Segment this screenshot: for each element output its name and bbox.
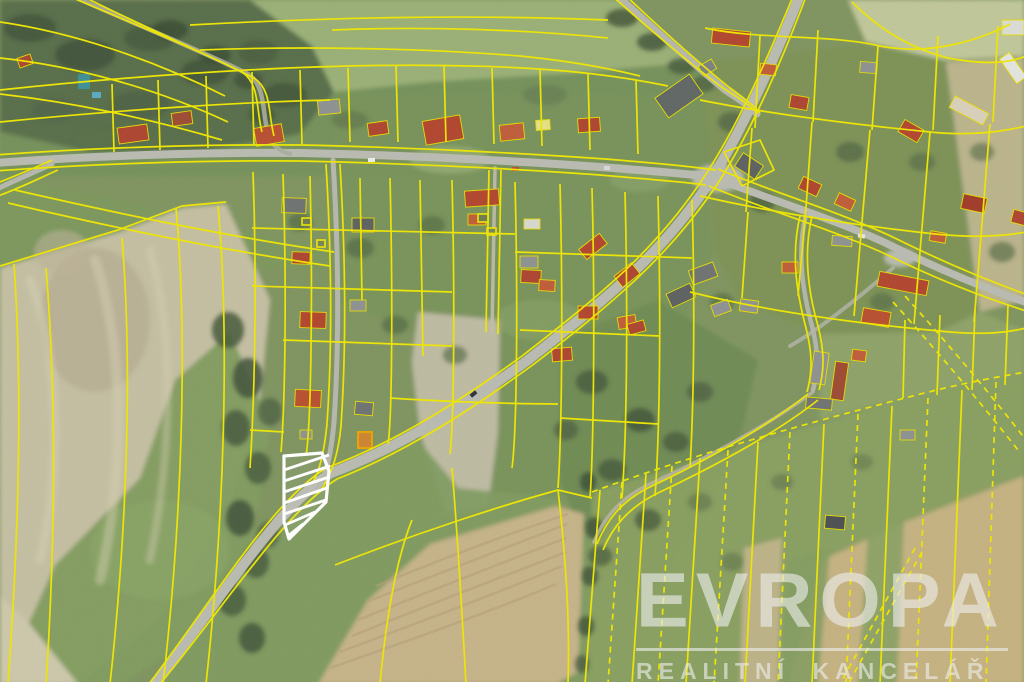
cadastral-map: EVROPA REALITNÍ KANCELÁŘ xyxy=(0,0,1024,682)
aerial-map-canvas xyxy=(0,0,1024,682)
photo-grain-overlay xyxy=(0,0,1024,682)
